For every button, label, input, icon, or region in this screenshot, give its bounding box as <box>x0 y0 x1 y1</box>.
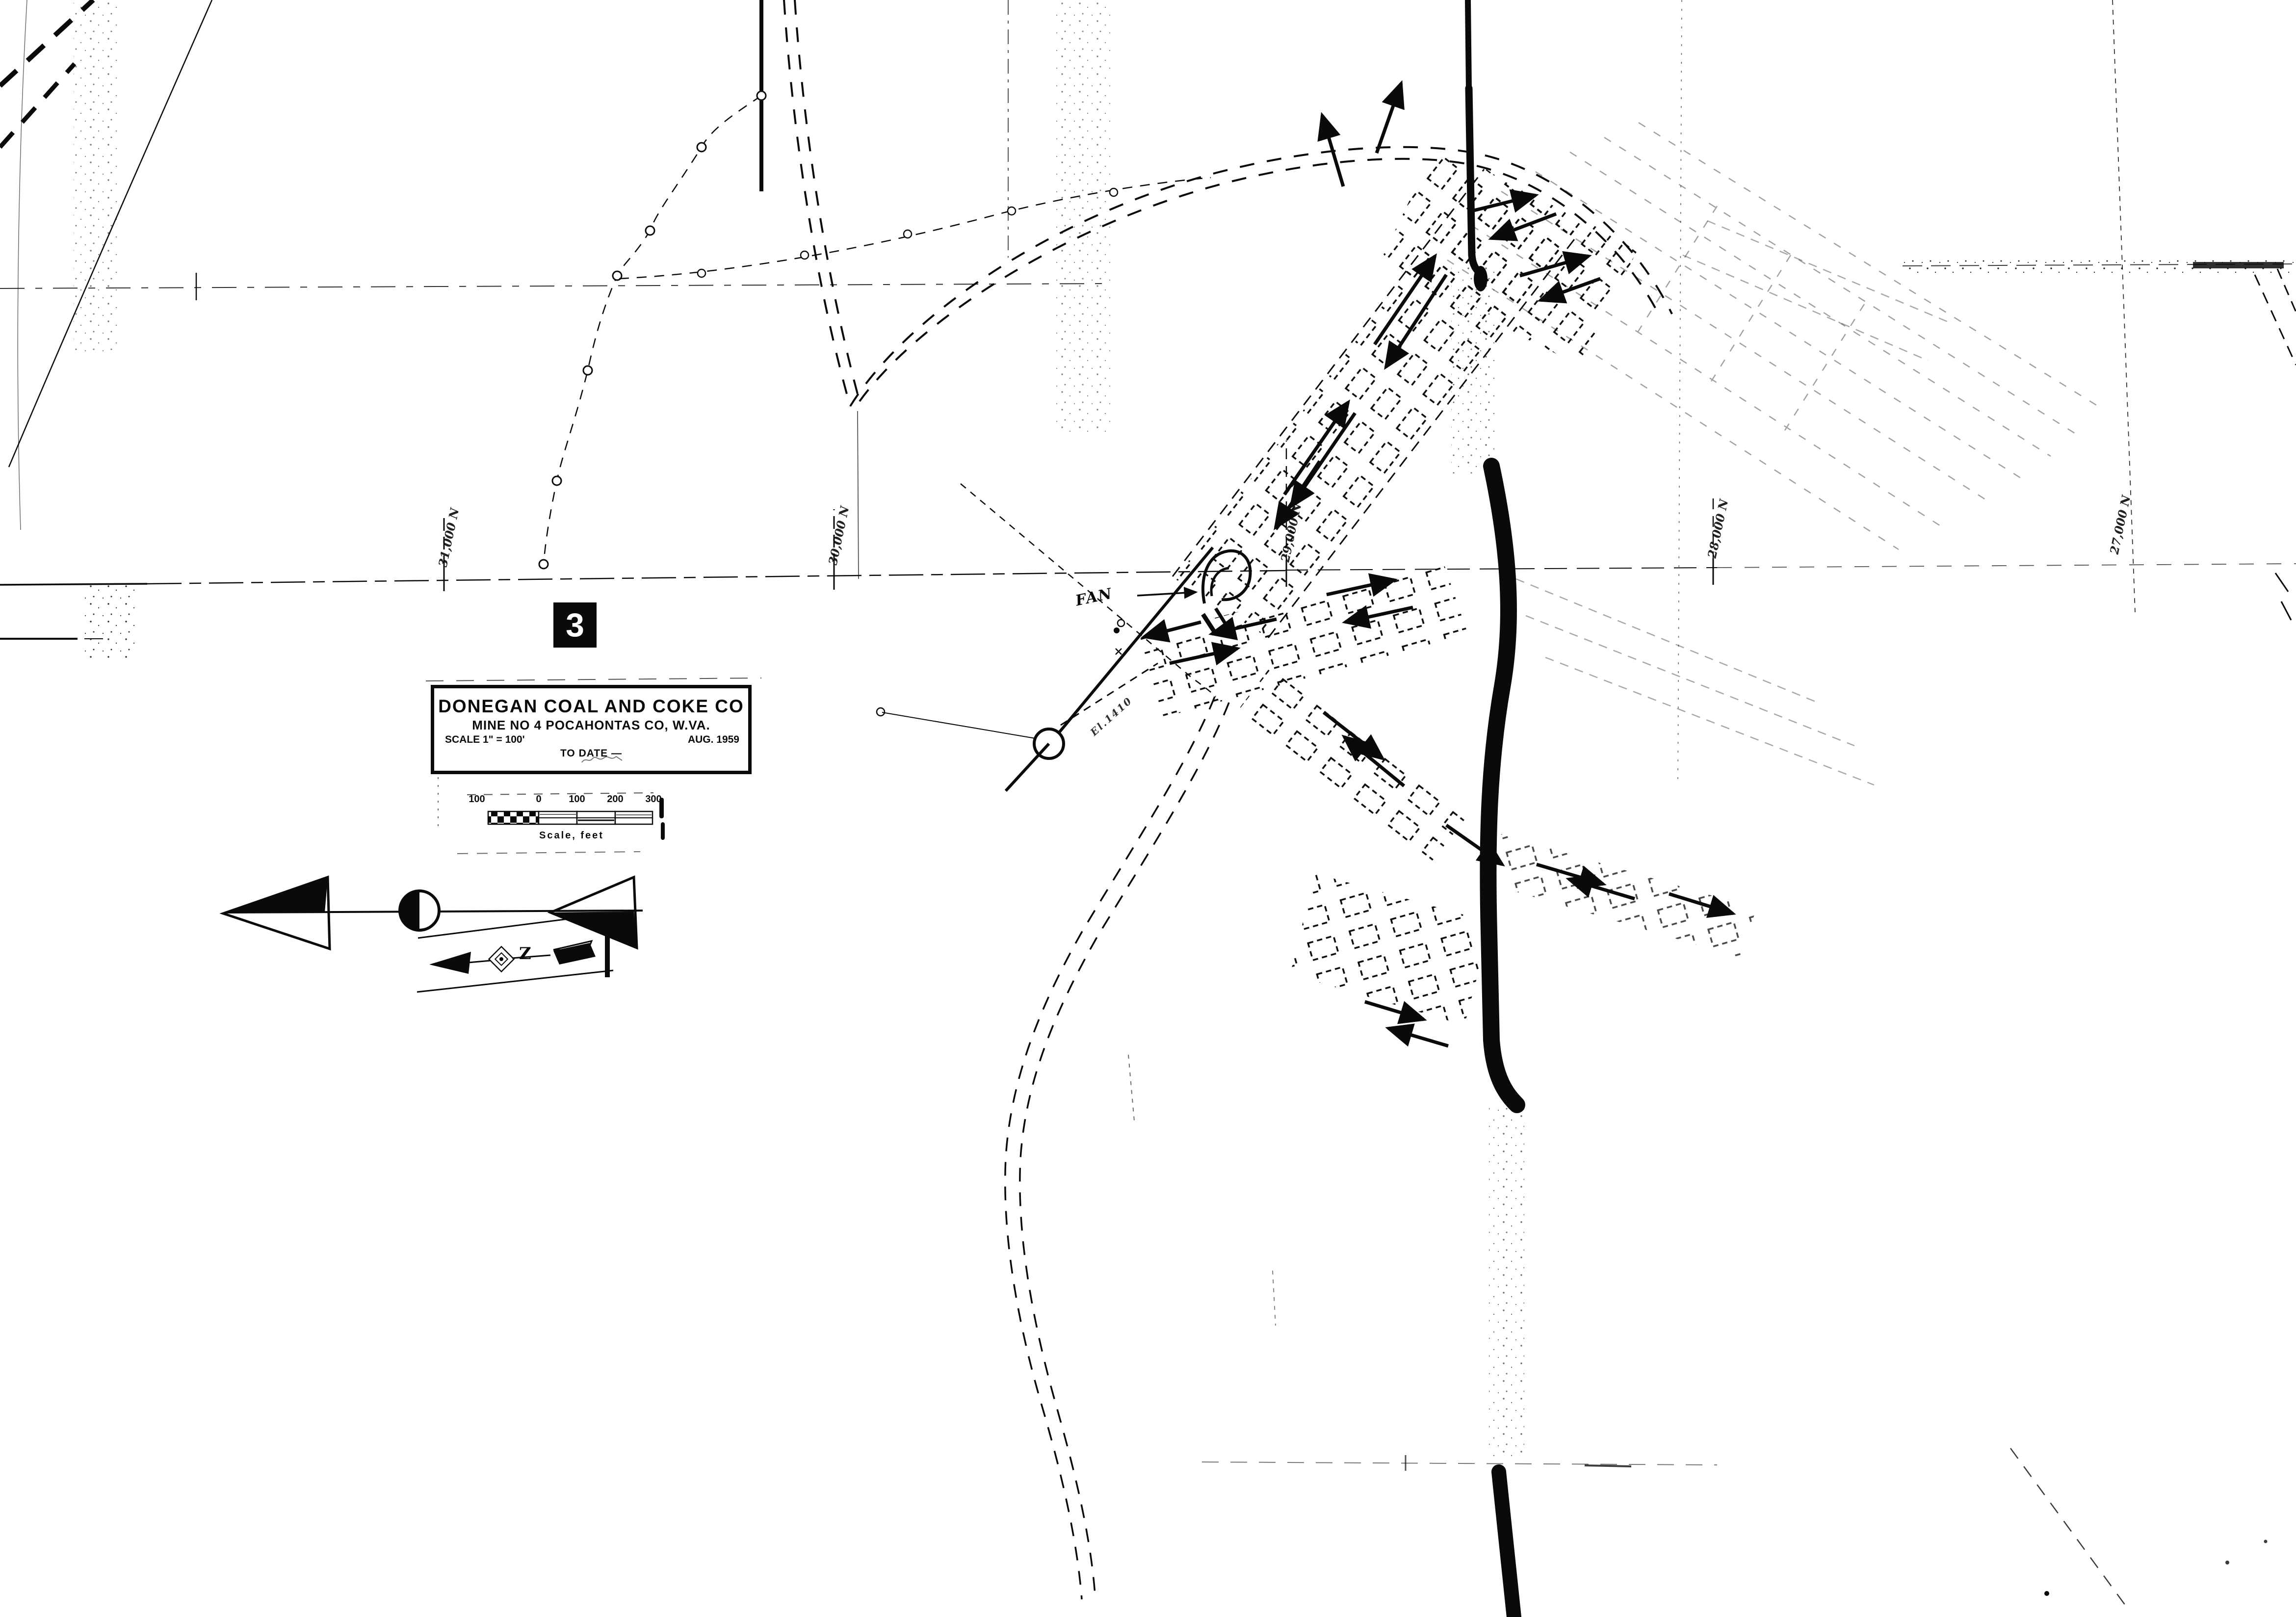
date-note: AUG. 1959 <box>688 734 739 746</box>
handwritten-scribble <box>579 750 638 767</box>
scale-date-row: SCALE 1" = 100' AUG. 1959 <box>434 733 748 746</box>
scale-caption: Scale, feet <box>510 830 633 841</box>
mine-name: MINE NO 4 POCAHONTAS CO, W.VA. <box>434 718 748 733</box>
company-name: DONEGAN COAL AND COKE CO <box>434 696 748 717</box>
survey-chain <box>539 0 1216 697</box>
scanned-mine-map: 3 DONEGAN COAL AND COKE CO MINE NO 4 POC… <box>0 0 2296 1617</box>
north-arrow <box>223 877 643 949</box>
magnetic-letter: Z <box>519 944 531 964</box>
road-vertex-tail <box>858 411 859 579</box>
map-linework <box>0 0 2296 1617</box>
sheet-number-badge: 3 <box>553 602 597 648</box>
scan-speckle <box>74 0 2296 1457</box>
scale-tick-label: 100 <box>569 794 585 805</box>
scale-tick-label: 0 <box>536 794 541 805</box>
scale-tick-label: 200 <box>607 794 623 805</box>
mine-workings <box>1137 147 1756 1025</box>
survey-grid-lines <box>0 0 2296 1605</box>
scale-bar-graphic <box>488 811 652 824</box>
scale-note: SCALE 1" = 100' <box>445 734 525 746</box>
scale-tick-label: 100 <box>469 794 485 805</box>
scale-tick-label: 300 <box>645 794 661 805</box>
